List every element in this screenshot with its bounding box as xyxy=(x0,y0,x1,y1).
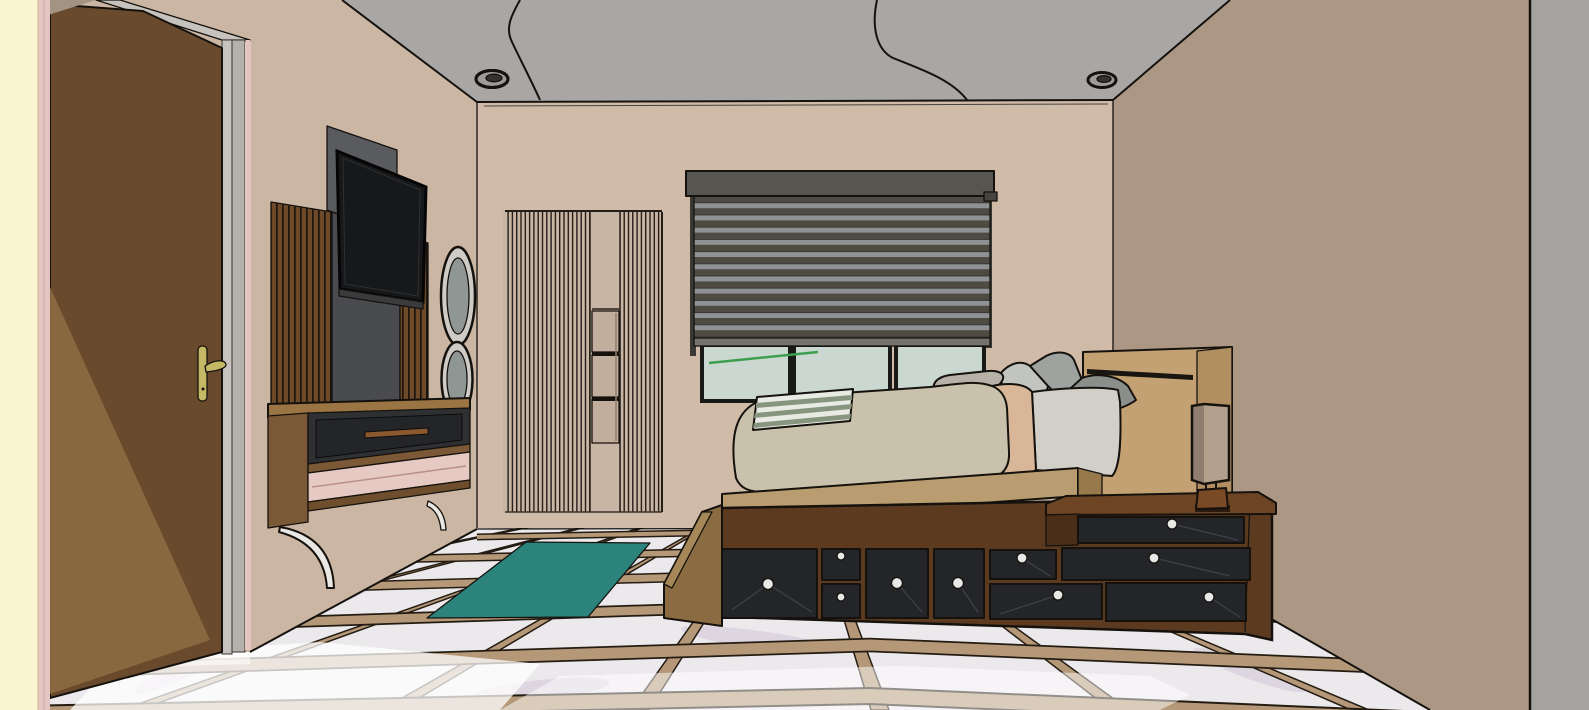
right-cut-plane xyxy=(1530,0,1589,710)
mirror-top xyxy=(441,247,475,345)
display-niche xyxy=(592,355,619,397)
drawer-knob xyxy=(763,579,774,590)
render-viewport[interactable] xyxy=(0,0,1589,710)
drawer-knob xyxy=(1204,592,1214,602)
cream-wall-strip xyxy=(0,0,38,710)
bed-drawer xyxy=(822,549,860,580)
fluted-panel xyxy=(503,210,662,513)
lamp-shade-right xyxy=(1204,404,1229,484)
lamp-base xyxy=(1196,488,1228,509)
door-panel xyxy=(50,4,226,698)
nightstand xyxy=(1046,492,1276,546)
bed-drawer xyxy=(934,549,984,618)
blind-bottom-bar xyxy=(694,338,990,346)
window-pane xyxy=(702,345,790,401)
drawer-knob xyxy=(837,593,845,601)
drawer-knob xyxy=(892,578,903,589)
bed-drawer xyxy=(866,549,928,618)
bed-drawer xyxy=(1062,548,1250,580)
window xyxy=(686,171,997,401)
recessed-light-right xyxy=(1088,73,1116,88)
display-niche xyxy=(592,311,619,352)
recessed-light-left xyxy=(476,71,508,88)
blind-body xyxy=(694,196,990,342)
display-niches xyxy=(592,311,619,443)
drawer-knob xyxy=(1167,519,1177,529)
mattress-sheet xyxy=(1032,388,1121,476)
bed-drawer xyxy=(990,550,1056,579)
bed-drawer xyxy=(990,584,1102,619)
drawer-knob xyxy=(953,578,964,589)
drawer-knob xyxy=(1017,553,1027,563)
console-left-face xyxy=(268,413,308,528)
window-valance xyxy=(686,171,994,196)
nightstand-drawer xyxy=(1078,517,1244,543)
drawer-knob xyxy=(1149,553,1159,563)
lamp-shade-left xyxy=(1192,404,1204,484)
slat-panel-left xyxy=(271,202,332,424)
bed-drawer xyxy=(1106,583,1246,621)
bedroom-scene[interactable] xyxy=(0,0,1589,710)
drawer-knob xyxy=(1053,590,1063,600)
table-lamp xyxy=(1192,404,1230,512)
door-frame xyxy=(222,40,251,654)
bed-drawer xyxy=(822,584,860,618)
bed-drawer xyxy=(722,549,817,618)
display-niche xyxy=(592,399,619,443)
drawer-knob xyxy=(837,552,845,560)
zebra-blind xyxy=(686,171,997,356)
entry-door xyxy=(50,0,251,698)
